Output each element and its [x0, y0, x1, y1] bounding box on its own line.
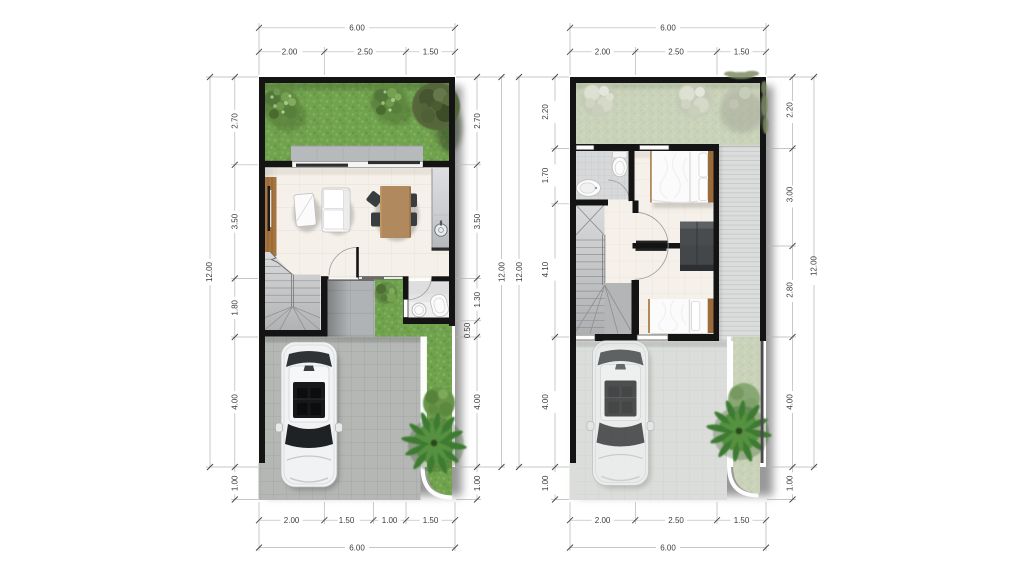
- svg-text:1.70: 1.70: [541, 167, 550, 183]
- svg-text:2.20: 2.20: [785, 102, 794, 118]
- svg-text:6.00: 6.00: [349, 543, 365, 552]
- svg-text:1.00: 1.00: [473, 475, 482, 491]
- svg-text:12.00: 12.00: [205, 261, 214, 282]
- svg-text:2.00: 2.00: [282, 48, 298, 57]
- svg-text:1.00: 1.00: [382, 516, 398, 525]
- svg-text:1.00: 1.00: [230, 475, 239, 491]
- svg-text:1.00: 1.00: [541, 475, 550, 491]
- svg-text:12.00: 12.00: [809, 255, 818, 276]
- svg-text:1.50: 1.50: [423, 48, 439, 57]
- svg-text:4.10: 4.10: [541, 261, 550, 277]
- svg-text:4.00: 4.00: [785, 394, 794, 410]
- svg-text:2.80: 2.80: [785, 282, 794, 298]
- svg-text:2.00: 2.00: [595, 48, 611, 57]
- svg-text:2.00: 2.00: [284, 516, 300, 525]
- svg-text:1.50: 1.50: [339, 516, 355, 525]
- svg-text:1.30: 1.30: [473, 291, 482, 307]
- svg-text:4.00: 4.00: [541, 394, 550, 410]
- svg-text:4.00: 4.00: [473, 394, 482, 410]
- svg-text:3.50: 3.50: [230, 213, 239, 229]
- svg-text:2.20: 2.20: [541, 104, 550, 120]
- svg-text:1.00: 1.00: [785, 475, 794, 491]
- svg-text:2.70: 2.70: [230, 113, 239, 129]
- svg-text:1.50: 1.50: [734, 48, 750, 57]
- svg-text:1.50: 1.50: [423, 516, 439, 525]
- svg-text:6.00: 6.00: [349, 24, 365, 33]
- svg-text:4.00: 4.00: [230, 394, 239, 410]
- svg-text:12.00: 12.00: [515, 261, 524, 282]
- svg-text:2.00: 2.00: [595, 516, 611, 525]
- svg-text:1.80: 1.80: [230, 299, 239, 315]
- svg-text:0.50: 0.50: [463, 322, 472, 338]
- svg-text:6.00: 6.00: [660, 24, 676, 33]
- svg-text:2.50: 2.50: [357, 48, 373, 57]
- svg-text:2.50: 2.50: [668, 48, 684, 57]
- svg-text:2.70: 2.70: [473, 113, 482, 129]
- svg-text:2.50: 2.50: [668, 516, 684, 525]
- svg-text:3.50: 3.50: [473, 213, 482, 229]
- svg-text:12.00: 12.00: [497, 261, 506, 282]
- svg-text:1.50: 1.50: [734, 516, 750, 525]
- svg-text:6.00: 6.00: [660, 543, 676, 552]
- svg-text:3.00: 3.00: [785, 186, 794, 202]
